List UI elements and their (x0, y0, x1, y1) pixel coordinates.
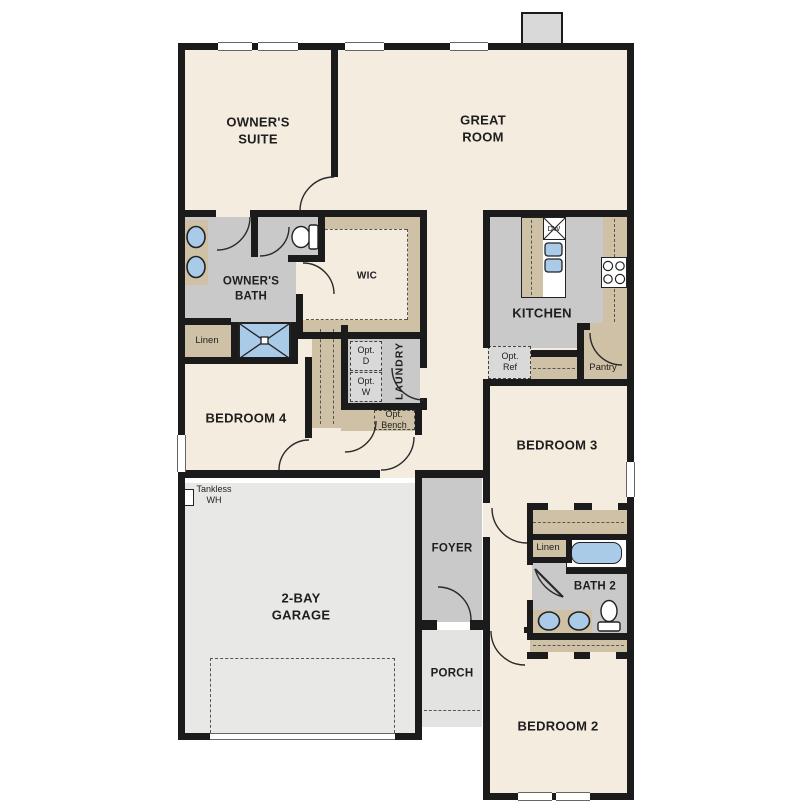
window (218, 42, 252, 51)
porch-edge-dash (424, 710, 480, 711)
stove (601, 257, 627, 288)
room-label-wic: WIC (357, 271, 377, 284)
closet-dash (533, 522, 624, 523)
wall (532, 557, 566, 563)
room-label-owners-bath: OWNER'S BATH (223, 274, 279, 303)
wall (577, 323, 590, 330)
wic-shelf-top (325, 217, 420, 229)
room-label-bath-2: BATH 2 (574, 580, 616, 595)
bath2-counter (532, 610, 592, 633)
owners-bath-counter (185, 220, 208, 285)
label-tankless-wh: Tankless WH (196, 484, 231, 506)
wall (178, 210, 216, 217)
label-pantry: Pantry (589, 362, 616, 374)
window (518, 792, 552, 801)
label-linen-owners-bath: Linen (195, 335, 218, 347)
wall (415, 478, 422, 733)
wic-shelf-right (408, 217, 420, 332)
wall (251, 210, 258, 257)
wall (181, 318, 231, 325)
room-label-kitchen: KITCHEN (512, 306, 572, 323)
wall (178, 43, 185, 740)
room-label-great-room: GREAT ROOM (460, 112, 506, 145)
wall (566, 568, 627, 574)
window (177, 435, 186, 472)
garage-door (210, 733, 395, 740)
wall (527, 652, 548, 659)
room-label-foyer: FOYER (432, 542, 473, 557)
room-label-bedroom-4: BEDROOM 4 (206, 411, 287, 428)
garage-door-setback (210, 658, 395, 733)
wic-shelf-dash (407, 229, 408, 320)
wall (420, 210, 427, 339)
bedroom2-closet (530, 640, 627, 652)
wall (483, 323, 490, 348)
shower (238, 322, 291, 360)
floor-plan: OWNER'S SUITE GREAT ROOM OWNER'S BATH WI… (0, 0, 810, 810)
hall-closet-dash (320, 329, 321, 424)
wall (415, 620, 437, 630)
window (556, 792, 590, 801)
window (626, 462, 635, 497)
wall (616, 652, 634, 659)
closet-dash (533, 645, 624, 646)
wall (420, 339, 427, 368)
label-opt-bench: Opt. Bench (381, 409, 407, 431)
wall (574, 652, 590, 659)
wall (574, 503, 592, 510)
wic-shelf-dash (306, 319, 407, 320)
wall (618, 503, 634, 510)
wall (296, 332, 427, 339)
label-opt-ref: Opt. Ref (501, 351, 518, 373)
wall (415, 470, 488, 478)
wall (305, 357, 312, 438)
chimney (521, 12, 563, 47)
label-opt-dryer: Opt. D (357, 345, 374, 367)
wall (250, 210, 427, 217)
wall (483, 379, 634, 386)
hall-closet (312, 325, 341, 428)
wall (318, 210, 325, 262)
wall (331, 50, 338, 177)
room-label-garage: 2-BAY GARAGE (272, 590, 331, 623)
wall (531, 350, 577, 357)
hall-closet-dash (333, 329, 334, 424)
wall (527, 633, 634, 640)
wall (483, 210, 634, 217)
wall (524, 627, 530, 633)
room-label-bedroom-2: BEDROOM 2 (518, 719, 599, 736)
room-label-bedroom-3: BEDROOM 3 (517, 438, 598, 455)
wall (527, 534, 634, 540)
wall (341, 325, 348, 410)
wall (483, 210, 490, 323)
wall (577, 323, 584, 379)
wall (627, 43, 634, 800)
label-linen-bath2: Linen (536, 542, 559, 554)
room-label-laundry: LAUNDRY (393, 342, 406, 400)
wall (566, 539, 572, 563)
window (450, 42, 488, 51)
counter-dash (533, 368, 575, 369)
wall (483, 379, 490, 503)
label-dishwasher: DW (548, 224, 561, 234)
room-label-porch: PORCH (431, 667, 474, 682)
wall (291, 322, 298, 364)
wall (527, 503, 548, 510)
tub-basin (571, 542, 622, 564)
wall (483, 537, 490, 793)
window (345, 42, 384, 51)
wall (178, 357, 291, 364)
window (258, 42, 298, 51)
wall (178, 470, 380, 478)
room-label-owners-suite: OWNER'S SUITE (226, 114, 289, 147)
wall (415, 403, 422, 435)
label-opt-washer: Opt. W (357, 376, 374, 398)
